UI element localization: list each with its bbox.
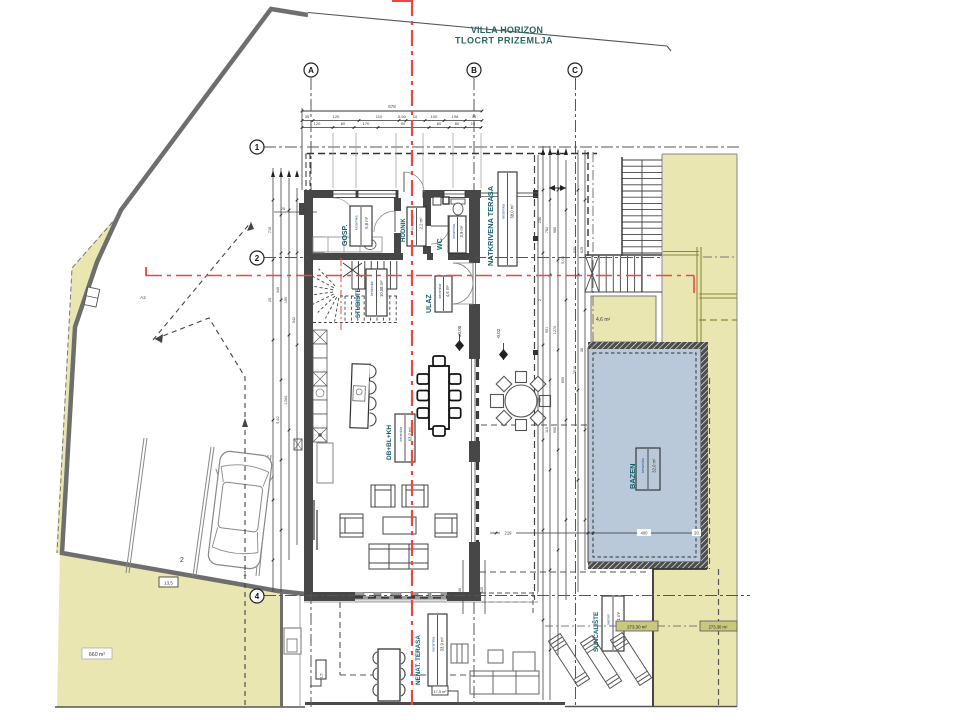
svg-text:35: 35 xyxy=(305,114,310,119)
svg-text:kamen: kamen xyxy=(606,614,610,625)
svg-text:keramika: keramika xyxy=(452,224,456,239)
svg-text:2: 2 xyxy=(180,557,184,564)
svg-text:5,90: 5,90 xyxy=(398,114,407,119)
svg-text:36: 36 xyxy=(458,588,462,592)
svg-text:800: 800 xyxy=(561,377,565,383)
svg-text:TLOCRT PRIZEMLJA: TLOCRT PRIZEMLJA xyxy=(455,36,553,46)
svg-text:25: 25 xyxy=(281,207,285,211)
svg-text:32,0 m²: 32,0 m² xyxy=(652,458,657,473)
svg-text:38,0 m²: 38,0 m² xyxy=(510,204,515,219)
svg-text:keramika: keramika xyxy=(502,204,506,219)
svg-text:25: 25 xyxy=(268,298,272,302)
svg-text:340: 340 xyxy=(276,287,280,293)
svg-text:230: 230 xyxy=(538,217,542,223)
svg-text:17,5 m²: 17,5 m² xyxy=(434,690,448,694)
svg-text:80: 80 xyxy=(341,121,346,126)
svg-text:110: 110 xyxy=(376,114,383,119)
svg-text:15: 15 xyxy=(538,398,542,402)
svg-text:keramika: keramika xyxy=(432,637,436,652)
svg-text:36: 36 xyxy=(580,348,584,352)
svg-text:-0,02: -0,02 xyxy=(496,328,501,339)
svg-text:2,2 m²: 2,2 m² xyxy=(419,217,424,229)
svg-text:273,30 m²: 273,30 m² xyxy=(709,625,728,630)
svg-text:273,30 m²: 273,30 m² xyxy=(627,625,647,630)
svg-text:4,6 m²: 4,6 m² xyxy=(596,317,611,323)
svg-text:2: 2 xyxy=(538,299,542,301)
svg-text:900: 900 xyxy=(553,427,557,433)
svg-text:10: 10 xyxy=(413,114,418,119)
svg-text:1.581: 1.581 xyxy=(284,395,288,405)
svg-text:965: 965 xyxy=(553,227,557,233)
svg-text:150: 150 xyxy=(284,297,288,303)
svg-text:keramika: keramika xyxy=(438,284,442,299)
svg-text:80: 80 xyxy=(437,121,442,126)
svg-text:120: 120 xyxy=(314,121,321,126)
svg-text:DB+BL+KH: DB+BL+KH xyxy=(386,425,393,460)
svg-text:1: 1 xyxy=(255,143,260,152)
svg-text:1270: 1270 xyxy=(553,326,557,334)
svg-text:NATKRIVENA TERASA: NATKRIVENA TERASA xyxy=(486,185,495,266)
svg-text:keramika: keramika xyxy=(399,427,403,442)
svg-text:keramika: keramika xyxy=(354,216,358,231)
svg-text:keramika: keramika xyxy=(370,281,374,296)
svg-text:NENAT. TERASA: NENAT. TERASA xyxy=(415,635,422,685)
svg-text:100: 100 xyxy=(431,114,438,119)
svg-text:219: 219 xyxy=(505,531,513,536)
svg-text:4: 4 xyxy=(255,592,260,601)
svg-text:A2: A2 xyxy=(140,295,146,301)
svg-text:80: 80 xyxy=(455,121,460,126)
svg-text:VILLA HORIZON: VILLA HORIZON xyxy=(471,25,543,35)
svg-text:9,62: 9,62 xyxy=(276,416,280,423)
svg-text:B: B xyxy=(471,66,477,75)
svg-text:901: 901 xyxy=(545,327,549,333)
svg-text:715: 715 xyxy=(268,227,272,233)
svg-text:keramika: keramika xyxy=(641,458,645,473)
svg-text:ULAZ: ULAZ xyxy=(426,294,433,313)
svg-text:625: 625 xyxy=(480,587,484,593)
svg-text:STUBIŠTE: STUBIŠTE xyxy=(354,288,362,318)
svg-text:C: C xyxy=(572,66,578,75)
svg-text:10,08 m²: 10,08 m² xyxy=(379,280,384,297)
svg-text:15: 15 xyxy=(471,121,476,126)
svg-text:660 m²: 660 m² xyxy=(89,652,105,658)
svg-text:170: 170 xyxy=(363,121,370,126)
svg-text:33,9 m²: 33,9 m² xyxy=(440,637,445,652)
svg-text:13,5: 13,5 xyxy=(164,581,173,586)
svg-text:2: 2 xyxy=(255,254,260,263)
svg-text:715: 715 xyxy=(300,207,306,211)
svg-text:110: 110 xyxy=(545,427,549,433)
svg-text:625: 625 xyxy=(580,247,584,253)
svg-text:GOSP.: GOSP. xyxy=(342,225,349,246)
svg-text:120: 120 xyxy=(333,114,340,119)
svg-text:3,9 m²: 3,9 m² xyxy=(459,225,464,237)
svg-text:782: 782 xyxy=(545,227,549,233)
svg-text:WC: WC xyxy=(437,238,444,250)
svg-text:198: 198 xyxy=(452,114,459,119)
svg-text:A: A xyxy=(308,66,314,75)
svg-text:400: 400 xyxy=(641,531,649,536)
svg-text:678: 678 xyxy=(388,104,396,109)
svg-text:HODNIK: HODNIK xyxy=(401,218,407,242)
svg-text:6,8 m²: 6,8 m² xyxy=(364,216,369,228)
svg-text:90: 90 xyxy=(401,121,406,126)
svg-text:4,6 m²: 4,6 m² xyxy=(445,285,450,297)
svg-text:20: 20 xyxy=(694,531,699,536)
svg-text:1,5: 1,5 xyxy=(320,674,324,679)
svg-text:542: 542 xyxy=(292,317,296,323)
